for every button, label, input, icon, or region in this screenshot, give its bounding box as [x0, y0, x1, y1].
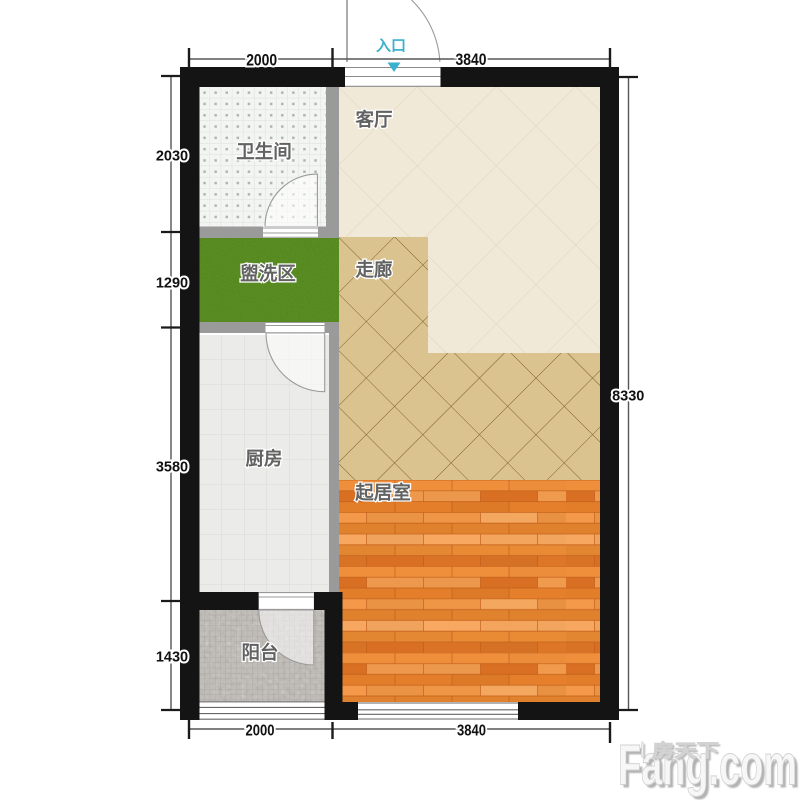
- svg-text:客厅: 客厅: [355, 109, 392, 130]
- svg-text:厨房: 厨房: [245, 448, 282, 469]
- svg-text:2000: 2000: [246, 722, 275, 739]
- svg-text:1290: 1290: [156, 276, 188, 292]
- svg-text:3840: 3840: [456, 51, 487, 69]
- svg-text:阳台: 阳台: [241, 642, 278, 663]
- svg-text:3840: 3840: [457, 722, 486, 739]
- svg-text:入口: 入口: [376, 38, 406, 55]
- svg-text:卫生间: 卫生间: [236, 141, 292, 162]
- svg-text:1430: 1430: [156, 650, 188, 666]
- svg-text:2030: 2030: [156, 148, 188, 164]
- svg-text:起居室: 起居室: [354, 482, 411, 503]
- svg-text:3580: 3580: [156, 460, 188, 476]
- svg-text:2000: 2000: [246, 52, 277, 70]
- svg-text:盥洗区: 盥洗区: [240, 263, 296, 284]
- svg-text:走廊: 走廊: [355, 259, 392, 280]
- svg-text:8330: 8330: [612, 389, 644, 405]
- svg-text:房天下: 房天下: [652, 741, 719, 761]
